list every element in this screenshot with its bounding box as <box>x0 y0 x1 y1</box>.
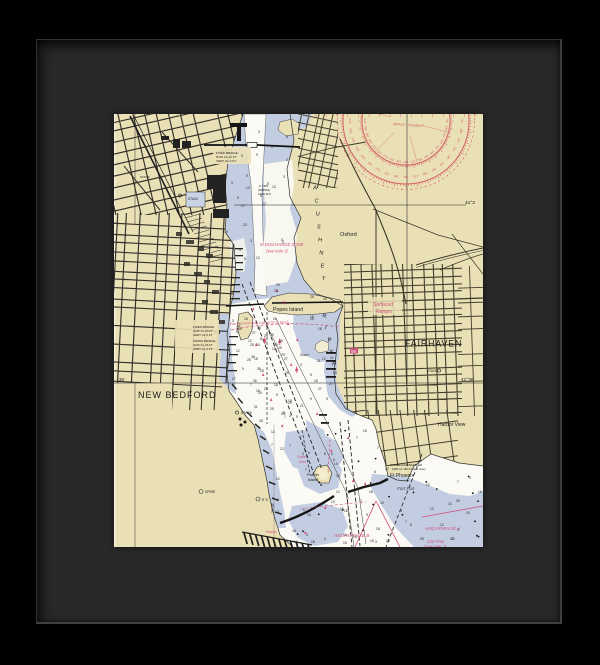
svg-text:(see note J): (see note J) <box>266 249 288 254</box>
svg-text:25: 25 <box>310 295 314 299</box>
svg-text:18: 18 <box>288 399 292 403</box>
svg-text:3: 3 <box>231 181 233 185</box>
svg-text:12: 12 <box>248 339 252 343</box>
svg-text:25: 25 <box>456 499 460 503</box>
svg-text:18: 18 <box>257 326 261 330</box>
svg-text:29: 29 <box>278 346 282 350</box>
svg-text:21: 21 <box>300 404 304 408</box>
svg-text:5: 5 <box>237 196 239 200</box>
svg-text:21: 21 <box>317 359 321 363</box>
svg-text:3: 3 <box>360 499 362 503</box>
svg-text:25: 25 <box>279 339 283 343</box>
svg-text:FAIRHAVEN: FAIRHAVEN <box>405 339 462 349</box>
svg-text:18: 18 <box>314 379 318 383</box>
svg-text:15: 15 <box>343 541 347 545</box>
svg-text:15: 15 <box>466 511 470 515</box>
svg-text:31: 31 <box>254 405 258 409</box>
svg-text:17: 17 <box>263 202 267 206</box>
svg-text:18: 18 <box>376 527 380 531</box>
svg-text:7: 7 <box>457 480 459 484</box>
svg-text:STACK: STACK <box>188 197 199 201</box>
svg-text:Surfaced: Surfaced <box>373 302 393 308</box>
svg-text:6: 6 <box>324 452 326 456</box>
svg-text:10: 10 <box>448 502 452 506</box>
svg-text:25: 25 <box>250 343 254 347</box>
svg-text:28: 28 <box>259 419 263 423</box>
svg-text:25: 25 <box>270 407 274 411</box>
svg-text:9: 9 <box>366 513 368 517</box>
svg-text:3: 3 <box>281 238 283 242</box>
svg-text:3: 3 <box>241 154 243 158</box>
svg-text:270: 270 <box>348 118 352 123</box>
svg-text:3: 3 <box>324 537 326 541</box>
svg-text:90: 90 <box>445 119 449 123</box>
svg-text:7: 7 <box>289 444 291 448</box>
svg-text:15: 15 <box>478 490 482 494</box>
svg-text:STACK: STACK <box>140 175 150 179</box>
svg-text:13: 13 <box>246 186 250 190</box>
svg-text:9: 9 <box>240 327 242 331</box>
svg-text:12: 12 <box>426 483 430 487</box>
svg-text:3: 3 <box>283 175 285 179</box>
svg-text:5: 5 <box>310 373 312 377</box>
svg-text:12: 12 <box>385 467 389 471</box>
svg-text:17: 17 <box>241 204 245 208</box>
svg-text:3: 3 <box>400 509 402 513</box>
svg-text:12: 12 <box>271 430 275 434</box>
svg-text:25: 25 <box>386 539 390 543</box>
svg-text:21: 21 <box>282 411 286 415</box>
svg-text:10: 10 <box>331 500 335 504</box>
svg-text:7: 7 <box>377 446 379 450</box>
svg-text:5: 5 <box>260 194 262 198</box>
svg-text:7: 7 <box>271 443 273 447</box>
svg-text:12: 12 <box>440 523 444 527</box>
svg-text:18: 18 <box>311 540 315 544</box>
svg-text:71: 71 <box>282 300 287 305</box>
svg-text:9: 9 <box>256 153 258 157</box>
svg-text:180: 180 <box>403 160 408 164</box>
svg-text:34: 34 <box>256 343 260 347</box>
svg-text:3: 3 <box>306 533 308 537</box>
svg-text:18: 18 <box>292 529 296 533</box>
svg-text:180: 180 <box>403 175 408 179</box>
svg-text:12: 12 <box>336 490 340 494</box>
svg-text:25: 25 <box>323 297 327 301</box>
svg-text:HOR CL 150 FT (see note): HOR CL 150 FT (see note) <box>392 467 425 471</box>
svg-text:13: 13 <box>256 256 260 260</box>
svg-text:7: 7 <box>341 441 343 445</box>
svg-text:9: 9 <box>244 257 246 261</box>
svg-text:7: 7 <box>356 436 358 440</box>
svg-text:3: 3 <box>457 528 459 532</box>
svg-text:12: 12 <box>430 507 434 511</box>
svg-text:69: 69 <box>351 349 356 354</box>
svg-text:29: 29 <box>264 334 268 338</box>
svg-text:21: 21 <box>330 356 334 360</box>
svg-text:12: 12 <box>336 474 340 478</box>
svg-text:6: 6 <box>303 508 305 512</box>
svg-text:25: 25 <box>274 289 278 293</box>
svg-text:5: 5 <box>260 337 262 341</box>
svg-text:29: 29 <box>270 333 274 337</box>
svg-text:SPIRE: SPIRE <box>205 490 216 494</box>
svg-text:7: 7 <box>305 468 307 472</box>
svg-text:41°3: 41°3 <box>465 200 475 206</box>
svg-text:15: 15 <box>254 357 258 361</box>
svg-text:90: 90 <box>460 119 464 123</box>
svg-text:STACK: STACK <box>427 369 438 373</box>
svg-text:25: 25 <box>264 387 268 391</box>
svg-text:6: 6 <box>331 452 333 456</box>
svg-text:25: 25 <box>247 358 251 362</box>
svg-text:VERT CL 6 FT: VERT CL 6 FT <box>193 333 213 337</box>
svg-text:10: 10 <box>380 501 384 505</box>
svg-text:3: 3 <box>286 158 288 162</box>
svg-text:70°55': 70°55' <box>271 503 275 513</box>
svg-text:3: 3 <box>277 498 279 502</box>
svg-text:Ramp: Ramp <box>266 529 277 534</box>
svg-text:9: 9 <box>246 174 248 178</box>
svg-text:12: 12 <box>322 357 326 361</box>
svg-text:18: 18 <box>256 389 260 393</box>
svg-text:12: 12 <box>236 349 240 353</box>
svg-text:12: 12 <box>450 537 454 541</box>
svg-text:18: 18 <box>260 369 264 373</box>
svg-text:3: 3 <box>289 414 291 418</box>
svg-text:25: 25 <box>285 371 289 375</box>
svg-text:18: 18 <box>272 347 276 351</box>
svg-text:ANCHORAGE B: ANCHORAGE B <box>333 533 370 539</box>
svg-text:3: 3 <box>250 239 252 243</box>
svg-text:18: 18 <box>369 490 373 494</box>
svg-text:10: 10 <box>334 462 338 466</box>
svg-text:9: 9 <box>310 397 312 401</box>
svg-text:10: 10 <box>343 533 347 537</box>
svg-text:18: 18 <box>333 371 337 375</box>
svg-text:Crow I: Crow I <box>300 353 309 357</box>
svg-text:8: 8 <box>267 182 269 186</box>
svg-text:27: 27 <box>329 382 333 386</box>
svg-text:VERT CL 4 FT: VERT CL 4 FT <box>193 347 213 351</box>
svg-text:25: 25 <box>420 537 424 541</box>
svg-text:12: 12 <box>276 477 280 481</box>
svg-text:8: 8 <box>286 135 288 139</box>
svg-text:NEW BEDFORD: NEW BEDFORD <box>138 390 217 400</box>
svg-text:27: 27 <box>318 387 322 391</box>
svg-text:Island: Island <box>308 478 318 482</box>
svg-text:Fort Flat: Fort Flat <box>397 486 415 491</box>
svg-text:5: 5 <box>239 248 241 252</box>
svg-text:R Tr: R Tr <box>262 498 269 502</box>
svg-text:15: 15 <box>307 513 311 517</box>
svg-text:3: 3 <box>375 540 377 544</box>
svg-text:27: 27 <box>284 357 288 361</box>
svg-text:27: 27 <box>232 377 236 381</box>
svg-text:15: 15 <box>363 429 367 433</box>
svg-text:21: 21 <box>328 337 332 341</box>
svg-text:13: 13 <box>272 185 276 189</box>
svg-text:21: 21 <box>273 317 277 321</box>
svg-text:9: 9 <box>226 230 228 234</box>
svg-text:18: 18 <box>294 540 298 544</box>
svg-text:6: 6 <box>308 451 310 455</box>
svg-text:18: 18 <box>274 383 278 387</box>
svg-text:7: 7 <box>250 383 252 387</box>
svg-text:Oxford: Oxford <box>340 232 357 238</box>
svg-text:18: 18 <box>244 317 248 321</box>
svg-text:41°36: 41°36 <box>461 377 474 383</box>
svg-text:5: 5 <box>410 523 412 527</box>
svg-text:23: 23 <box>243 223 247 227</box>
svg-text:18: 18 <box>318 327 322 331</box>
svg-text:9: 9 <box>242 367 244 371</box>
svg-text:5: 5 <box>276 393 278 397</box>
svg-text:3: 3 <box>277 510 279 514</box>
svg-text:Palmer: Palmer <box>307 473 320 477</box>
svg-text:270: 270 <box>363 118 367 123</box>
svg-text:Ramps: Ramps <box>376 309 392 315</box>
svg-text:3: 3 <box>232 319 234 323</box>
svg-text:27: 27 <box>252 331 256 335</box>
svg-text:9: 9 <box>296 415 298 419</box>
svg-text:18: 18 <box>370 539 374 543</box>
svg-text:18: 18 <box>353 535 357 539</box>
svg-text:5: 5 <box>326 397 328 401</box>
svg-text:VERT CL 4 FT: VERT CL 4 FT <box>216 159 236 163</box>
svg-text:7: 7 <box>405 520 407 524</box>
svg-text:36': 36' <box>119 377 125 382</box>
svg-text:Ft Phoenix: Ft Phoenix <box>390 473 414 479</box>
svg-text:3: 3 <box>271 145 273 149</box>
svg-text:Area: Area <box>298 460 306 464</box>
svg-text:26: 26 <box>253 379 257 383</box>
svg-text:Harbor View: Harbor View <box>438 422 466 428</box>
svg-text:STACK: STACK <box>241 411 253 415</box>
svg-text:12: 12 <box>280 447 284 451</box>
svg-text:3: 3 <box>302 452 304 456</box>
svg-text:(see note J): (see note J) <box>424 544 447 547</box>
svg-text:29: 29 <box>276 283 280 287</box>
svg-text:3: 3 <box>300 363 302 367</box>
svg-text:Popes Island: Popes Island <box>273 307 303 313</box>
svg-text:25: 25 <box>310 317 314 321</box>
svg-text:7: 7 <box>347 497 349 501</box>
svg-text:18: 18 <box>344 509 348 513</box>
svg-text:6: 6 <box>374 470 376 474</box>
svg-text:3: 3 <box>258 130 260 134</box>
